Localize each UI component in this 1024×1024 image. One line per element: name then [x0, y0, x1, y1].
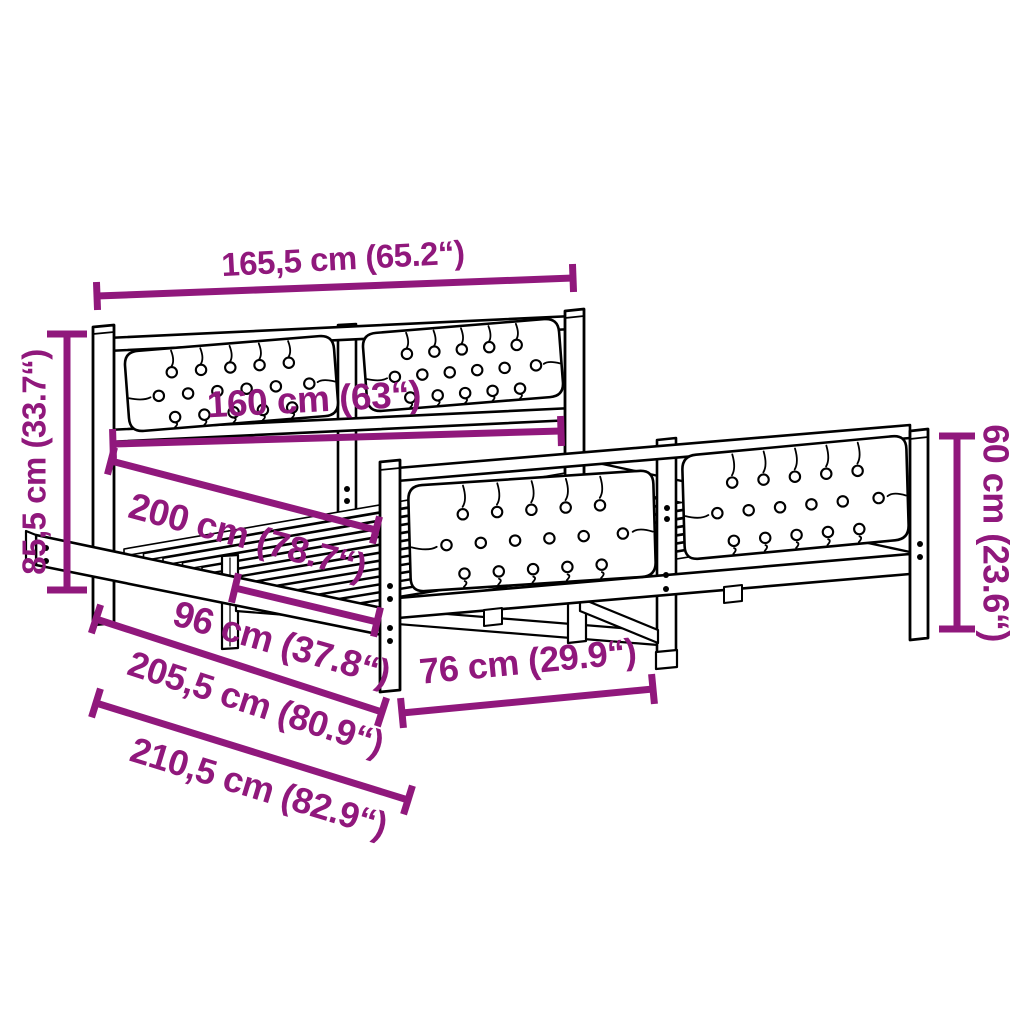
bed-frame-diagram-canvas: 165,5 cm (65.2“) 85,5 cm (33.7“) 160 cm …	[0, 0, 1024, 1024]
tuft-button	[544, 533, 554, 543]
tuft-button	[476, 538, 486, 548]
screw-hole	[917, 554, 923, 560]
dimension-line	[402, 689, 653, 713]
tuft-button	[758, 474, 768, 484]
screw-hole	[387, 583, 393, 589]
screw-hole	[664, 505, 670, 511]
dim-total-width-top: 165,5 cm (65.2“)	[220, 233, 465, 283]
tuft-button	[578, 531, 588, 541]
tuft-button	[727, 477, 737, 487]
tuft-button	[531, 360, 541, 370]
tuft-button	[760, 533, 770, 543]
screw-hole	[664, 516, 670, 522]
tuft-button	[791, 530, 801, 540]
dim-footboard-span: 76 cm (29.9“)	[417, 630, 638, 692]
tuft-button	[429, 346, 439, 356]
tuft-button	[484, 342, 494, 352]
screw-hole	[344, 498, 350, 504]
tuft-button	[402, 349, 412, 359]
footboard-post-right	[910, 429, 928, 640]
screw-hole	[387, 625, 393, 631]
tuft-button	[492, 507, 502, 517]
tuft-button	[441, 540, 451, 550]
screw-hole	[663, 572, 669, 578]
tuft-button	[511, 340, 521, 350]
tuft-button	[596, 559, 606, 569]
dim-headboard-height: 85,5 cm (33.7“)	[16, 349, 53, 574]
dimension-tick	[572, 264, 573, 292]
tuft-button	[775, 502, 785, 512]
slat-bracket	[484, 608, 502, 626]
tuft-button	[854, 524, 864, 534]
screw-hole	[387, 638, 393, 644]
tuft-button	[472, 365, 482, 375]
tuft-button	[167, 367, 177, 377]
tuft-button	[284, 358, 294, 368]
tuft-button	[433, 390, 443, 400]
tuft-button	[458, 509, 468, 519]
tuft-button	[460, 388, 470, 398]
dimension-diagram: 165,5 cm (65.2“) 85,5 cm (33.7“) 160 cm …	[0, 0, 1024, 1024]
tuft-button	[618, 528, 628, 538]
tuft-button	[806, 499, 816, 509]
tuft-button	[823, 527, 833, 537]
tuft-button	[790, 472, 800, 482]
dimension-line	[97, 278, 573, 296]
tuft-button	[712, 508, 722, 518]
tuft-button	[595, 500, 605, 510]
dimension-tick	[92, 689, 101, 718]
tuft-button	[457, 344, 467, 354]
tuft-button	[254, 360, 264, 370]
tuft-button	[154, 391, 164, 401]
dim-footboard-height: 60 cm (23.6“)	[975, 424, 1016, 642]
tuft-button	[873, 493, 883, 503]
screw-hole	[917, 541, 923, 547]
tuft-button	[499, 363, 509, 373]
tuft-button	[838, 496, 848, 506]
tuft-button	[852, 466, 862, 476]
tuft-button	[526, 505, 536, 515]
dimension-tick	[561, 416, 562, 446]
tuft-button	[528, 564, 538, 574]
tuft-button	[494, 566, 504, 576]
tuft-button	[445, 367, 455, 377]
slat-bracket	[724, 585, 742, 603]
tuft-button	[183, 388, 193, 398]
tuft-button	[170, 412, 180, 422]
tuft-button	[729, 536, 739, 546]
dimension-tick	[404, 786, 413, 815]
tuft-button	[562, 562, 572, 572]
tuft-button	[487, 386, 497, 396]
dimension-tick	[96, 282, 97, 310]
tuft-button	[821, 469, 831, 479]
tuft-button	[510, 535, 520, 545]
tuft-button	[459, 568, 469, 578]
footboard-strut-foot	[656, 650, 677, 669]
footboard-center-strut	[657, 438, 676, 662]
dimension-tick	[401, 698, 404, 728]
tuft-button	[225, 362, 235, 372]
tuft-button	[561, 502, 571, 512]
tuft-button	[196, 365, 206, 375]
tuft-button	[744, 505, 754, 515]
screw-hole	[387, 596, 393, 602]
screw-hole	[663, 586, 669, 592]
screw-hole	[344, 486, 350, 492]
tuft-button	[515, 383, 525, 393]
dimension-tick	[652, 674, 655, 704]
